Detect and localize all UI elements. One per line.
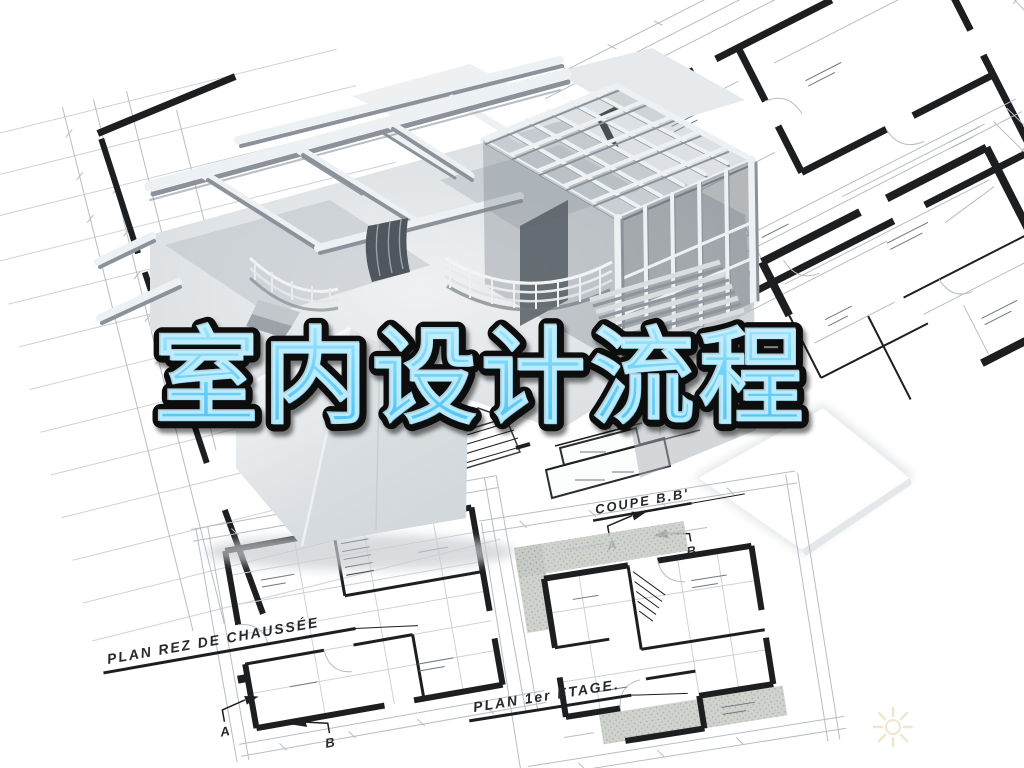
svg-text:B: B bbox=[324, 734, 338, 751]
title-bevel: 室内设计流程 bbox=[154, 320, 808, 436]
sun-watermark-icon bbox=[874, 708, 912, 746]
illustration-canvas: COUPE B.B' A B PLAN REZ DE CHAUSSÉE bbox=[0, 0, 1024, 768]
model-glassblock-wall bbox=[366, 218, 410, 282]
architecture-promo-image: COUPE B.B' A B PLAN REZ DE CHAUSSÉE bbox=[0, 0, 1024, 768]
title-group: 室内设计流程 室内设计流程 室内设计流程 bbox=[154, 320, 809, 437]
svg-text:A: A bbox=[218, 723, 233, 740]
blueprint-plan-first bbox=[479, 469, 847, 768]
